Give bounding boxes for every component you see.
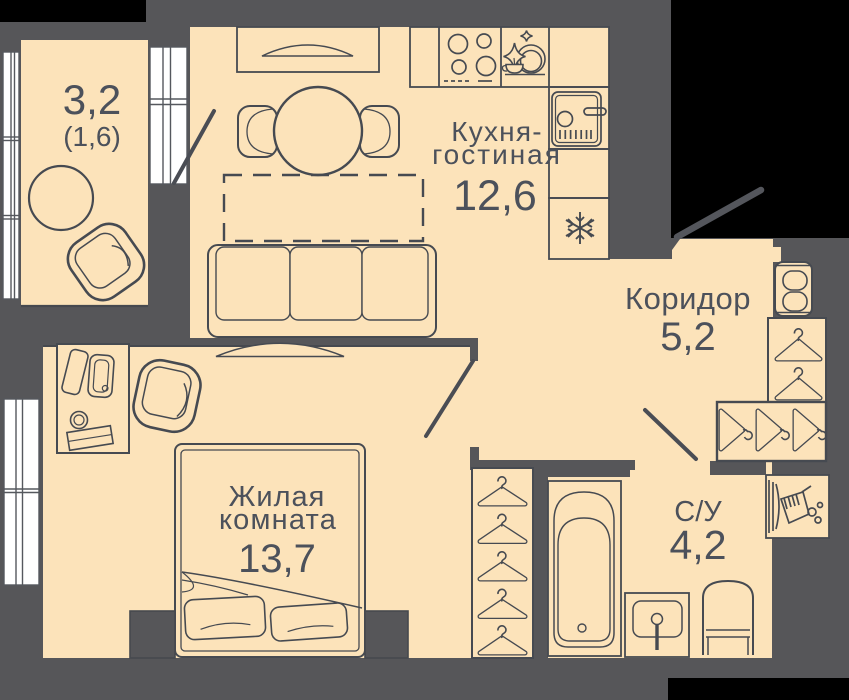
svg-text:4,2: 4,2: [670, 522, 727, 568]
svg-text:Коридор: Коридор: [625, 281, 751, 316]
svg-text:3,2: 3,2: [63, 76, 121, 123]
svg-text:12,6: 12,6: [453, 172, 537, 220]
svg-text:(1,6): (1,6): [63, 121, 121, 152]
svg-text:комната: комната: [219, 504, 337, 536]
svg-text:13,7: 13,7: [238, 537, 316, 581]
svg-text:5,2: 5,2: [660, 315, 716, 359]
svg-text:гостиная: гостиная: [432, 139, 562, 170]
